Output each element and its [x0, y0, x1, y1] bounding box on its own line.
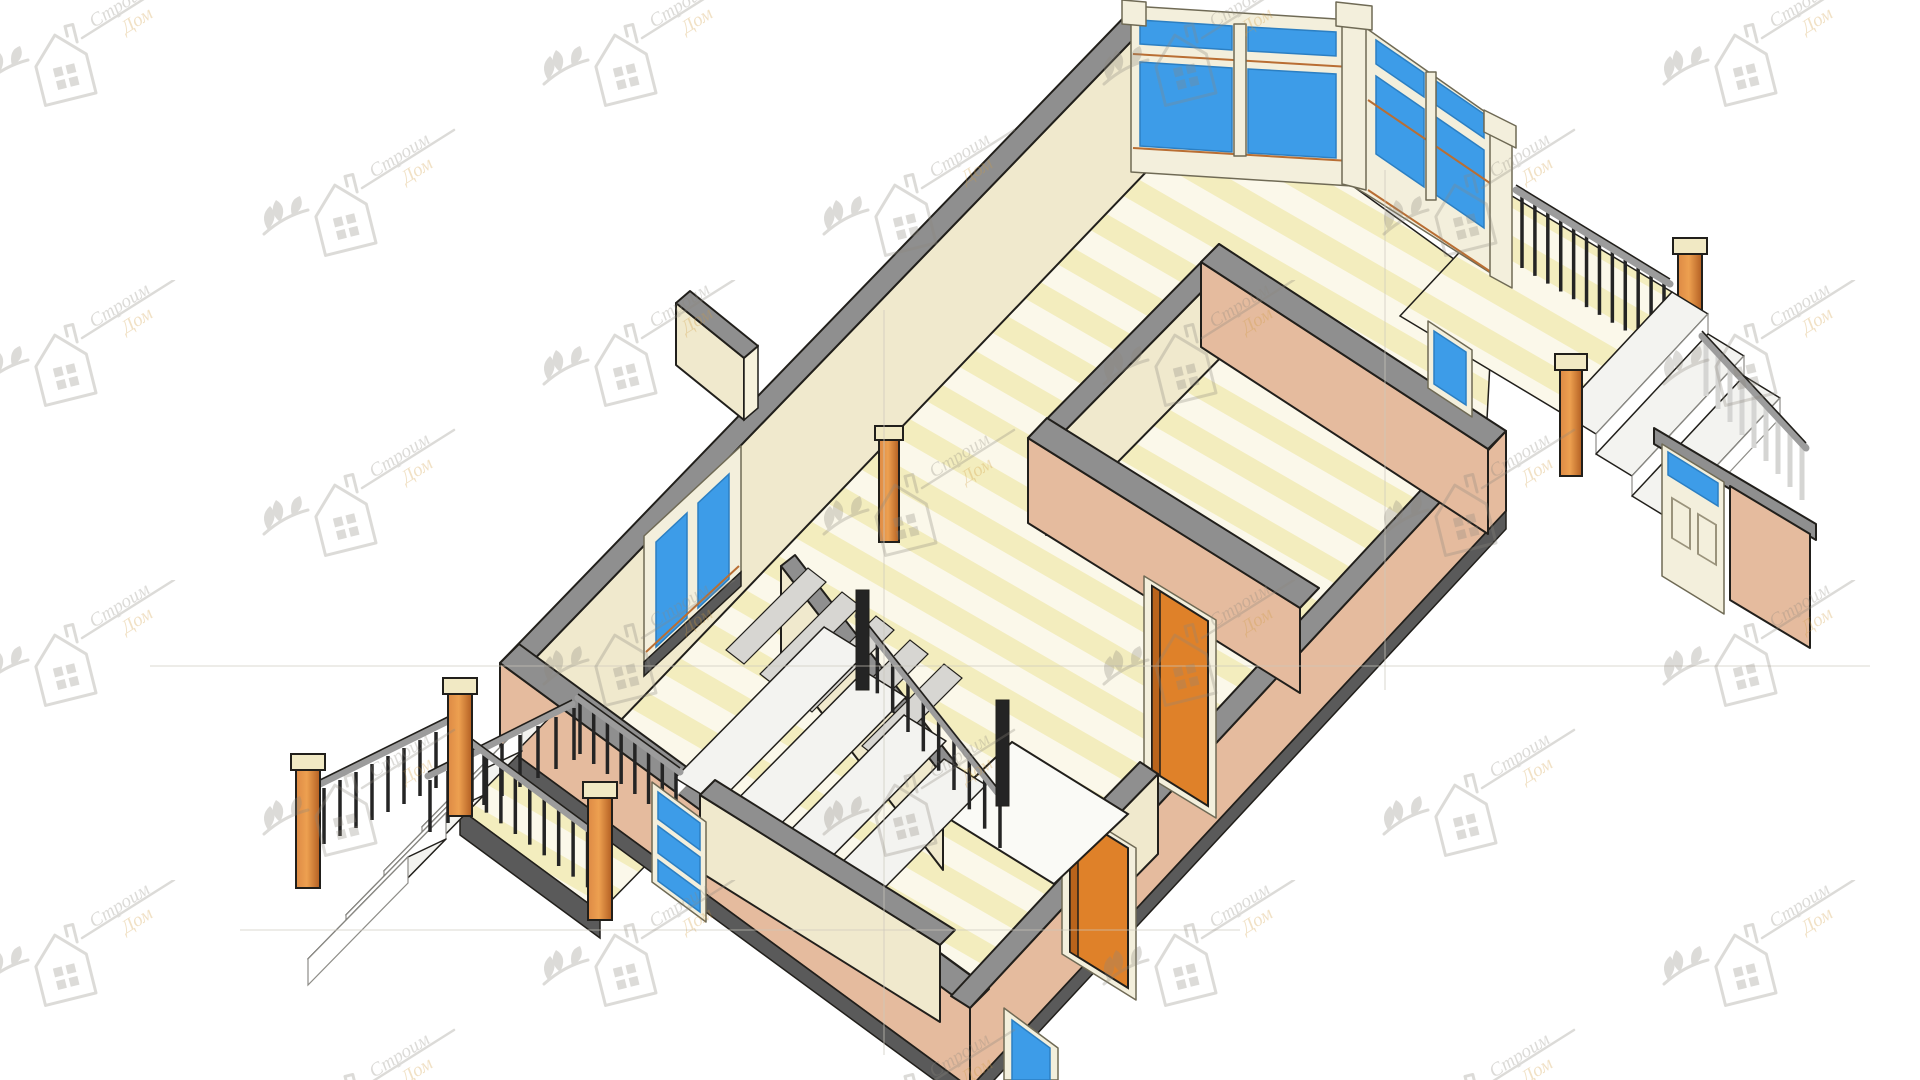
watermark-layer — [0, 0, 1920, 1080]
floor-plan-3d-view: Строим Дом — [0, 0, 1920, 1080]
floor-plan-canvas: Строим Дом — [0, 0, 1920, 1080]
